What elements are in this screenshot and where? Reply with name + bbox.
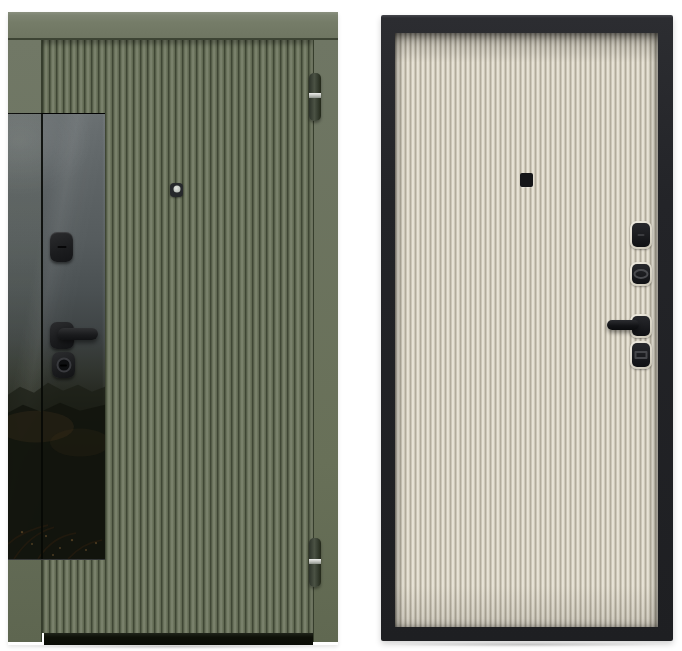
top-hinge (309, 73, 321, 121)
thumbturn-escutcheon (50, 232, 73, 262)
exterior-handle-lever (58, 328, 98, 340)
door-frame-header (8, 12, 338, 40)
interior-peephole (520, 173, 533, 187)
latch-face (632, 223, 650, 247)
interior-door-shadow (385, 642, 669, 647)
keyhole-face (632, 264, 650, 284)
exterior-door-view (8, 12, 338, 645)
cylinder-keyhole (56, 358, 71, 373)
exterior-door-shadow (14, 644, 332, 649)
keyhole-escutcheon (630, 262, 652, 286)
deadbolt-face (632, 343, 650, 367)
bottom-hinge (309, 538, 321, 587)
cylinder-lock (52, 352, 75, 378)
glass-seam-line (41, 114, 43, 559)
deadbolt-escutcheon (630, 341, 652, 369)
hinge-band (309, 93, 321, 98)
interior-door-view (381, 15, 673, 641)
latch-escutcheon (630, 221, 652, 249)
exterior-peephole (170, 183, 183, 197)
interior-handle-lever (607, 320, 639, 330)
interior-door-panel (395, 33, 658, 627)
product-photo-stage (0, 0, 682, 651)
hinge-band (309, 559, 321, 564)
